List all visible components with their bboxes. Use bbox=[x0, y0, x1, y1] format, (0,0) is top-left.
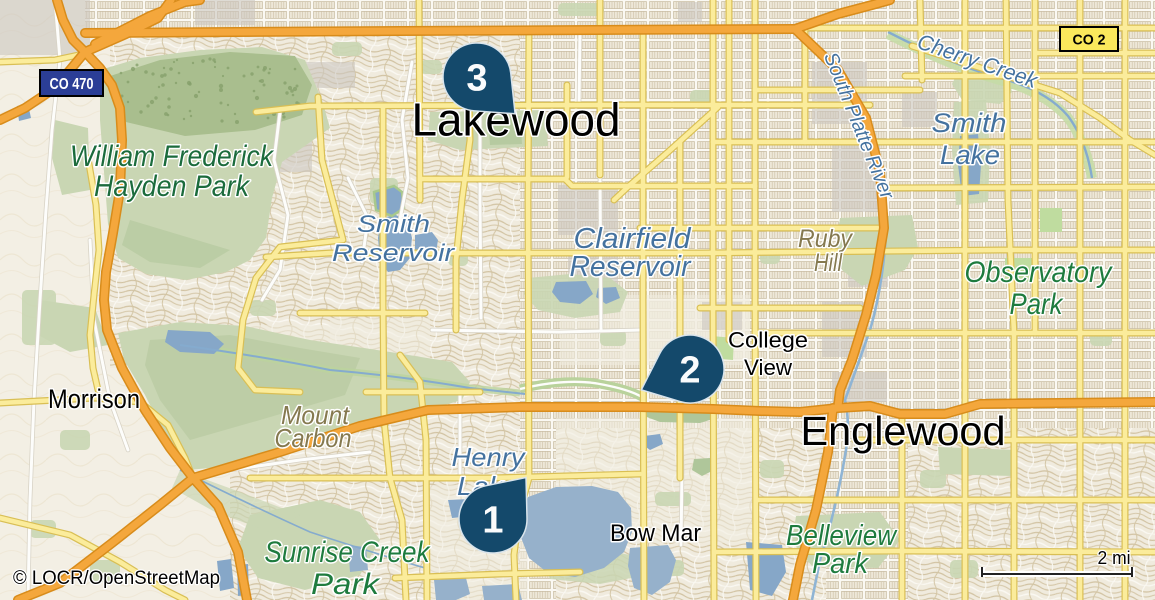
svg-text:Bow Mar: Bow Mar bbox=[610, 520, 701, 547]
svg-text:3: 3 bbox=[466, 57, 487, 99]
svg-text:William Frederick: William Frederick bbox=[70, 140, 275, 173]
svg-text:Englewood: Englewood bbox=[801, 408, 1006, 454]
svg-text:Sunrise Creek: Sunrise Creek bbox=[265, 536, 432, 569]
svg-text:Hill: Hill bbox=[814, 249, 843, 277]
svg-text:View: View bbox=[744, 355, 792, 380]
svg-text:Lakewood: Lakewood bbox=[412, 94, 621, 146]
svg-text:Park: Park bbox=[1010, 288, 1065, 321]
svg-text:Park: Park bbox=[311, 568, 381, 600]
svg-text:2: 2 bbox=[679, 349, 700, 391]
svg-text:CO 470: CO 470 bbox=[50, 76, 94, 93]
svg-text:© LOCR/OpenStreetMap: © LOCR/OpenStreetMap bbox=[13, 568, 220, 589]
svg-text:Morrison: Morrison bbox=[48, 384, 140, 414]
svg-text:Reservoir: Reservoir bbox=[570, 251, 692, 283]
svg-text:Smith: Smith bbox=[357, 211, 430, 238]
svg-text:Park: Park bbox=[812, 548, 869, 580]
svg-text:Lake: Lake bbox=[940, 140, 1000, 170]
svg-text:1: 1 bbox=[482, 499, 503, 541]
svg-text:Carbon: Carbon bbox=[275, 423, 352, 453]
svg-text:CO 2: CO 2 bbox=[1073, 32, 1106, 49]
svg-text:Reservoir: Reservoir bbox=[332, 240, 455, 267]
svg-text:Hayden Park: Hayden Park bbox=[94, 170, 251, 203]
svg-text:Henry: Henry bbox=[452, 442, 527, 472]
svg-text:Smith: Smith bbox=[932, 108, 1007, 138]
svg-text:College: College bbox=[728, 328, 808, 353]
svg-text:2 mi: 2 mi bbox=[1098, 548, 1131, 568]
svg-text:Observatory: Observatory bbox=[965, 256, 1114, 289]
